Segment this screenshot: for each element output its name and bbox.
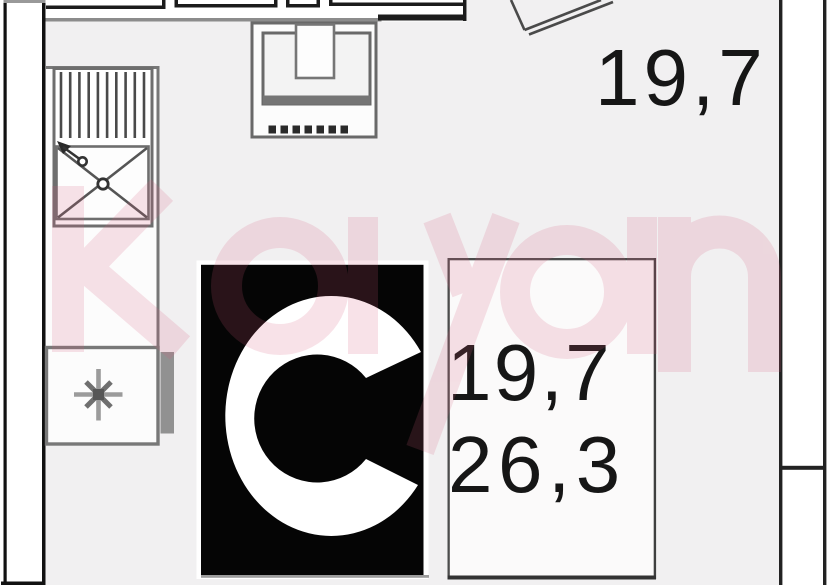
svg-text:19,7: 19,7	[595, 33, 767, 122]
svg-text:26,3: 26,3	[448, 420, 626, 509]
